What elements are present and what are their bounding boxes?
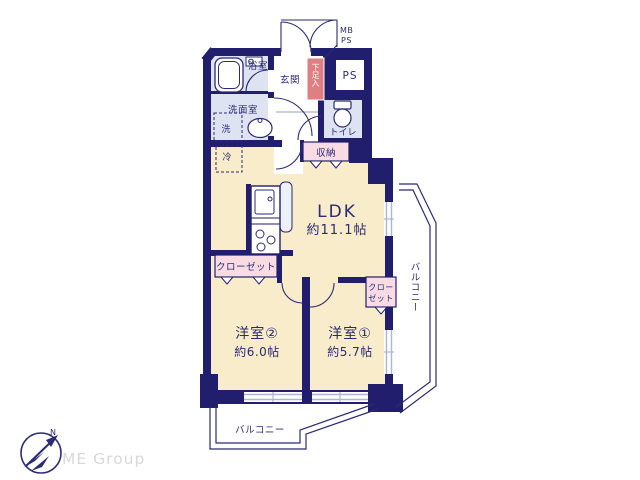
label-closet-small-line2: ゼット xyxy=(368,293,394,303)
label-balcony-bottom: バルコニー xyxy=(235,425,285,436)
label-toilet: トイレ xyxy=(329,128,356,138)
floorplan-page: 浴室 玄関 MB PS 下足入 PS 洗面室 洗 トイレ 収納 冷 LDK 約1… xyxy=(0,0,640,480)
label-room2-size: 約6.0帖 xyxy=(234,344,280,359)
label-room1-size: 約5.7帖 xyxy=(327,344,373,359)
wall-top-mid xyxy=(311,48,323,56)
label-ldk: LDK xyxy=(317,202,357,222)
floorplan-svg: 浴室 玄関 MB PS 下足入 PS 洗面室 洗 トイレ 収納 冷 LDK 約1… xyxy=(0,0,640,480)
entrance-door-swing xyxy=(281,20,337,52)
label-entrance: 玄関 xyxy=(280,74,300,86)
label-room2: 洋室② xyxy=(235,325,279,342)
label-bathroom: 浴室 xyxy=(248,60,268,72)
label-pipe-shaft-top: PS xyxy=(341,36,352,45)
label-storage: 収納 xyxy=(316,147,336,159)
label-ldk-size: 約11.1帖 xyxy=(307,223,368,238)
brand-logo-text: ME Group xyxy=(62,450,145,468)
wall-toilet-left xyxy=(318,95,324,140)
wall-pillar-bottom-left xyxy=(200,374,218,408)
bathtub-icon xyxy=(215,58,243,92)
label-shoe-box: 下足入 xyxy=(311,63,320,87)
compass-north-icon: N xyxy=(21,428,61,473)
wall-closet-right-block xyxy=(277,250,282,283)
label-meter-box: MB xyxy=(340,26,353,35)
window-ldk-right xyxy=(384,202,394,236)
label-closet-main: クローゼット xyxy=(216,261,276,273)
label-room1: 洋室① xyxy=(328,325,372,342)
toilet-icon xyxy=(334,101,351,127)
label-balcony-side: バルコニー xyxy=(409,262,421,312)
wall-bedroom-top xyxy=(338,277,368,283)
label-washer: 洗 xyxy=(221,123,230,135)
washbasin-icon xyxy=(248,119,272,138)
wall-right-upper xyxy=(362,95,372,143)
label-closet-small-line1: クロー xyxy=(368,283,394,292)
bath-door-gap xyxy=(268,70,274,92)
label-pipe-shaft: PS xyxy=(343,70,358,82)
wall-block-bottom-right xyxy=(368,384,403,412)
compass-north-label: N xyxy=(50,428,56,437)
window-room1-bottom xyxy=(312,392,368,402)
wall-kitchen-back xyxy=(246,184,251,256)
wall-bedroom-divider xyxy=(302,277,310,392)
wall-left xyxy=(203,58,211,406)
wall-ldk-corner-block xyxy=(368,158,393,184)
label-fridge: 冷 xyxy=(222,151,231,163)
label-washroom: 洗面室 xyxy=(228,104,258,116)
window-room2-bottom xyxy=(244,392,302,402)
window-room1-right xyxy=(384,330,394,374)
